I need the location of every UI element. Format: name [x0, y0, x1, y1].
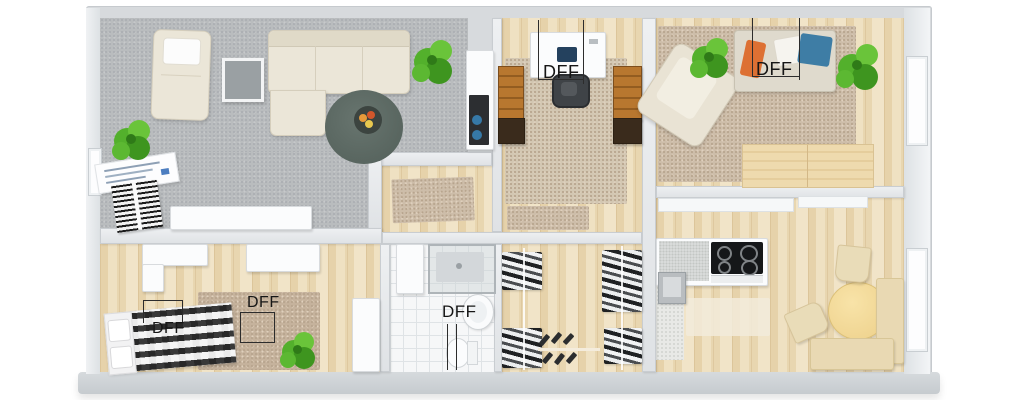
- dimension-line: [538, 20, 539, 80]
- floor-plan-scene: DFF DFF DFF DFF DFF: [0, 0, 1019, 400]
- entry-doormat: [391, 177, 474, 224]
- window: [906, 56, 928, 146]
- bed-center-seam: [807, 145, 808, 187]
- burner: [717, 246, 732, 261]
- chaise-seam: [161, 74, 201, 76]
- shower: [428, 244, 496, 294]
- roof-window-label: DFF: [152, 320, 185, 338]
- sofa-back: [269, 31, 409, 47]
- roof-window-label: DFF: [247, 294, 280, 312]
- toilet: [446, 336, 476, 368]
- fruit-bowl: [354, 106, 382, 134]
- sofa-seam: [315, 46, 316, 92]
- closet-cabinet: [142, 244, 208, 266]
- closet-rod: [621, 246, 623, 370]
- wall: [368, 152, 382, 232]
- clothes-rack: [502, 252, 542, 290]
- dining-rug: [686, 298, 770, 336]
- laptop: [557, 47, 577, 62]
- kitchenette-counter: [466, 50, 494, 150]
- chaise-pillow: [162, 37, 201, 65]
- roof-window-label: DFF: [756, 59, 793, 80]
- bookshelf-divider: [132, 182, 143, 230]
- sofa-seam: [362, 46, 363, 92]
- wall-cabinet: [798, 196, 868, 208]
- dresser: [246, 244, 320, 272]
- wall: [100, 228, 382, 244]
- pillow: [107, 318, 131, 342]
- roof-window-label: DFF: [543, 62, 580, 83]
- fruit: [365, 120, 373, 128]
- wardrobe: [352, 298, 380, 372]
- dimension-line: [752, 18, 753, 77]
- toilet-tank: [467, 341, 478, 365]
- roof-window-label: DFF: [442, 302, 477, 322]
- bookshelf: [111, 179, 163, 233]
- burner: [718, 261, 731, 274]
- plant: [688, 36, 732, 82]
- dimension-line: [799, 18, 800, 80]
- building-front-wall-face: [78, 372, 940, 394]
- dining-chair: [834, 244, 872, 283]
- dimension-line: [583, 20, 584, 84]
- kitchen-sink-unit: [658, 272, 686, 304]
- hallway-rug: [507, 206, 589, 230]
- clothes-rack: [604, 328, 642, 364]
- clothes-rack: [502, 328, 542, 368]
- closet-rod: [523, 248, 525, 370]
- wall: [380, 244, 390, 372]
- plant: [278, 330, 320, 372]
- wall-cabinet: [658, 198, 794, 212]
- closet-cabinet: [142, 264, 164, 292]
- sink-bowl: [472, 130, 482, 140]
- plant: [110, 118, 154, 162]
- sofa-chaise-extension: [270, 90, 326, 136]
- sideboard: [170, 206, 312, 230]
- wall: [382, 232, 642, 244]
- pillow: [110, 345, 134, 369]
- cabinet: [613, 118, 642, 144]
- side-table: [222, 58, 264, 102]
- bookcase: [613, 66, 642, 120]
- burner: [741, 260, 758, 276]
- dimension-line: [456, 324, 457, 370]
- wall: [642, 18, 656, 372]
- shower-drain: [456, 263, 462, 269]
- bookcase: [498, 66, 524, 120]
- magazine-logo: [161, 168, 170, 175]
- bathroom-cabinet: [396, 244, 424, 294]
- pillow-blue: [797, 33, 833, 67]
- bed-double: [742, 144, 874, 188]
- cabinet: [498, 118, 525, 144]
- fruit: [367, 111, 375, 119]
- chair-cushion: [561, 82, 577, 96]
- window: [906, 248, 928, 352]
- dimension-line: [447, 324, 448, 370]
- shoe-shelf: [538, 348, 600, 351]
- corner-sofa: [268, 30, 410, 94]
- sink-bowl: [472, 115, 482, 125]
- chaise-lounge: [150, 29, 211, 121]
- plant: [410, 38, 456, 86]
- desk-item: [589, 39, 598, 44]
- oven-front: [711, 275, 763, 283]
- cooktop: [711, 242, 763, 274]
- plant: [834, 42, 882, 92]
- roof-window-outline: [240, 312, 275, 343]
- bed-head: [104, 311, 137, 375]
- sink-basin: [663, 277, 681, 297]
- corner-bench: [810, 338, 894, 370]
